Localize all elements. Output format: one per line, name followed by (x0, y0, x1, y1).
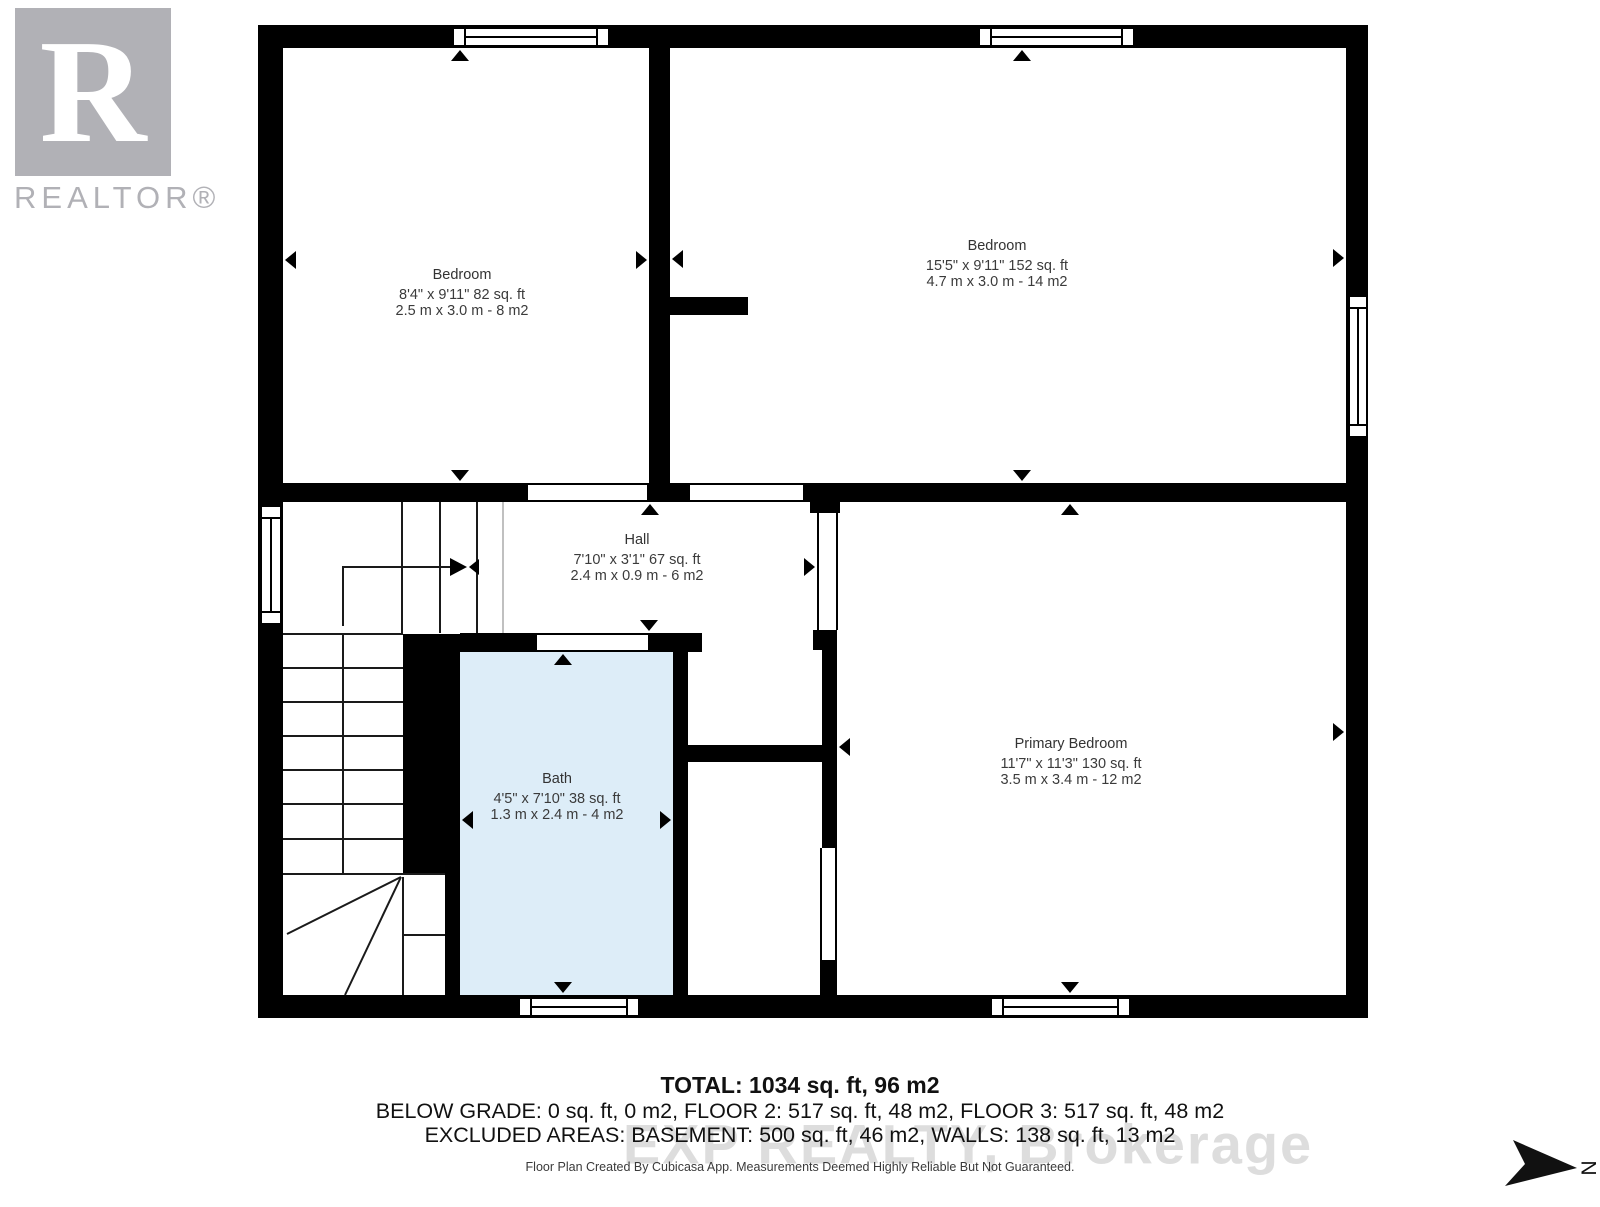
door-opening (820, 848, 837, 960)
wall-segment (258, 25, 1368, 48)
measure-arrow-right-icon (636, 251, 647, 269)
room-name: Hall (571, 532, 704, 548)
bath-floor (460, 652, 673, 995)
measure-arrow-right-icon (1333, 249, 1344, 267)
room-dims-imperial: 4'5" x 7'10" 38 sq. ft (491, 791, 624, 807)
stairs-direction-arrow-icon (450, 558, 467, 576)
floor-plan-page: R REALTOR® (0, 0, 1600, 1207)
measure-arrow-right-icon (660, 811, 671, 829)
measure-arrow-right-icon (804, 558, 815, 576)
realtor-logo-text: REALTOR® (14, 180, 220, 216)
measure-arrow-up-icon (1061, 504, 1079, 515)
room-name: Bedroom (396, 267, 529, 283)
window-pane (466, 36, 596, 38)
window-jamb (1121, 29, 1123, 45)
wall-segment (680, 745, 825, 762)
realtor-logo: R (15, 8, 171, 176)
measure-arrow-right-icon (1333, 723, 1344, 741)
window-pane (992, 36, 1121, 38)
measure-arrow-left-icon (672, 250, 683, 268)
room-boundary-line (502, 502, 504, 633)
window (518, 997, 640, 1017)
room-label-bath: Bath 4'5" x 7'10" 38 sq. ft 1.3 m x 2.4 … (491, 771, 624, 823)
room-name: Bath (491, 771, 624, 787)
measure-arrow-down-icon (451, 470, 469, 481)
measure-arrow-down-icon (1061, 982, 1079, 993)
wall-segment (813, 630, 837, 650)
disclaimer-text: Floor Plan Created By Cubicasa App. Meas… (100, 1160, 1500, 1174)
wall-segment (803, 483, 1346, 502)
window-pane (270, 519, 272, 611)
measure-arrow-left-icon (839, 738, 850, 756)
window (452, 27, 610, 47)
window-pane (1004, 1006, 1117, 1008)
door-opening (537, 633, 648, 652)
room-name: Bedroom (926, 238, 1068, 254)
excluded-areas-text: EXCLUDED AREAS: BASEMENT: 500 sq. ft, 46… (100, 1123, 1500, 1147)
measure-arrow-down-icon (554, 982, 572, 993)
window-pane (1357, 309, 1359, 424)
room-dims-metric: 3.5 m x 3.4 m - 12 m2 (1000, 772, 1141, 788)
room-dims-imperial: 15'5" x 9'11" 152 sq. ft (926, 258, 1068, 274)
window (978, 27, 1135, 47)
room-dims-metric: 2.4 m x 0.9 m - 6 m2 (571, 568, 704, 584)
window (990, 997, 1131, 1017)
window (260, 505, 282, 625)
realtor-logo-letter: R (40, 18, 147, 166)
measure-arrow-down-icon (1013, 470, 1031, 481)
wall-segment (663, 297, 748, 315)
staircase-drawing (283, 495, 483, 1000)
window-jamb (1117, 999, 1119, 1015)
wall-segment (1346, 25, 1368, 1018)
window-pane (532, 1006, 626, 1008)
window-jamb (626, 999, 628, 1015)
room-dims-metric: 4.7 m x 3.0 m - 14 m2 (926, 274, 1068, 290)
room-dims-metric: 1.3 m x 2.4 m - 4 m2 (491, 807, 624, 823)
door-opening (817, 513, 838, 630)
room-label-hall: Hall 7'10" x 3'1" 67 sq. ft 2.4 m x 0.9 … (571, 532, 704, 584)
wall-segment (820, 960, 837, 995)
wall-segment (647, 483, 690, 502)
measure-arrow-down-icon (640, 620, 658, 631)
window-jamb (596, 29, 598, 45)
room-dims-imperial: 11'7" x 11'3" 130 sq. ft (1000, 756, 1141, 772)
door-opening (690, 483, 803, 502)
room-label-bedroom-right: Bedroom 15'5" x 9'11" 152 sq. ft 4.7 m x… (926, 238, 1068, 290)
total-area-text: TOTAL: 1034 sq. ft, 96 m2 (100, 1072, 1500, 1099)
area-summary: TOTAL: 1034 sq. ft, 96 m2 BELOW GRADE: 0… (100, 1072, 1500, 1174)
north-label: N (1576, 1160, 1600, 1175)
measure-arrow-up-icon (451, 50, 469, 61)
wall-segment (649, 48, 670, 483)
room-label-primary-bedroom: Primary Bedroom 11'7" x 11'3" 130 sq. ft… (1000, 736, 1141, 788)
room-name: Primary Bedroom (1000, 736, 1141, 752)
window-jamb (1350, 424, 1366, 426)
room-dims-metric: 2.5 m x 3.0 m - 8 m2 (396, 303, 529, 319)
measure-arrow-left-icon (285, 251, 296, 269)
room-dims-imperial: 7'10" x 3'1" 67 sq. ft (571, 552, 704, 568)
window-jamb (262, 611, 280, 613)
door-opening (528, 483, 647, 502)
measure-arrow-up-icon (1013, 50, 1031, 61)
window (1348, 295, 1368, 438)
room-label-bedroom-left: Bedroom 8'4" x 9'11" 82 sq. ft 2.5 m x 3… (396, 267, 529, 319)
room-dims-imperial: 8'4" x 9'11" 82 sq. ft (396, 287, 529, 303)
wall-segment (810, 483, 840, 513)
wall-segment (673, 650, 688, 995)
measure-arrow-up-icon (554, 654, 572, 665)
floor-areas-text: BELOW GRADE: 0 sq. ft, 0 m2, FLOOR 2: 51… (100, 1099, 1500, 1123)
measure-arrow-up-icon (641, 504, 659, 515)
